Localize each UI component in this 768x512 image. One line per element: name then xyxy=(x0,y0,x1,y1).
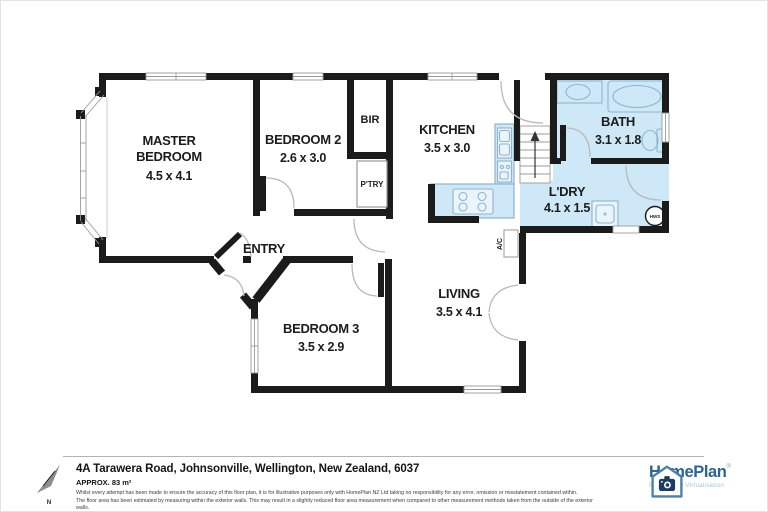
laundry-dims: 4.1 x 1.5 xyxy=(544,201,590,215)
hot-water-system-icon: HWS xyxy=(646,207,665,226)
bedroom2-door xyxy=(260,176,266,211)
master-name-line2: BEDROOM xyxy=(136,149,202,164)
floorplan-drawing: HWS A/C xyxy=(1,1,768,456)
bedroom3-name: BEDROOM 3 xyxy=(283,321,359,336)
floor-area: APPROX. 83 m² xyxy=(76,478,596,487)
entry-name: ENTRY xyxy=(243,241,286,256)
bedroom2-dims: 2.6 x 3.0 xyxy=(280,151,326,165)
cooktop-icon xyxy=(453,189,493,214)
homeplan-logo: HomePlan® Building 3D Virtualisation xyxy=(649,464,731,489)
french-door-left xyxy=(489,285,518,312)
floorplan-page: HWS A/C xyxy=(0,0,768,512)
master-dims: 4.5 x 4.1 xyxy=(146,169,192,183)
bath-name: BATH xyxy=(601,114,635,129)
north-compass-icon: N xyxy=(27,459,71,507)
staircase xyxy=(520,126,550,183)
kitchen-name: KITCHEN xyxy=(419,122,475,137)
footer-divider xyxy=(63,456,704,457)
master-door xyxy=(216,234,240,257)
master-window xyxy=(146,73,206,80)
bedroom2-window xyxy=(293,73,323,80)
disclaimer-line2: The floor area has been estimated by mea… xyxy=(76,498,596,512)
pantry-name: P'TRY xyxy=(361,180,385,189)
property-address: 4A Tarawera Road, Johnsonville, Wellingt… xyxy=(76,463,596,475)
bir-name: BIR xyxy=(361,114,380,126)
logo-registered-mark: ® xyxy=(727,464,731,470)
bedroom3-door xyxy=(378,263,384,297)
bedroom3-dims: 3.5 x 2.9 xyxy=(298,340,344,354)
kitchen-sink-icon xyxy=(498,128,512,158)
kitchen-window xyxy=(428,73,477,80)
ac-unit-icon: A/C xyxy=(497,230,518,257)
laundry-name: L'DRY xyxy=(549,184,586,199)
homeplan-house-icon xyxy=(649,464,685,500)
laundry-tub-icon xyxy=(592,201,618,227)
living-dims: 3.5 x 4.1 xyxy=(436,305,482,319)
bedroom2-name: BEDROOM 2 xyxy=(265,132,341,147)
bedroom3-window xyxy=(251,319,258,373)
french-door-right xyxy=(489,313,518,340)
laundry-door-gap xyxy=(613,226,639,233)
disclaimer-line1: Whilst every attempt has been made to en… xyxy=(76,490,596,498)
living-name: LIVING xyxy=(438,286,480,301)
kitchen-dims: 3.5 x 3.0 xyxy=(424,141,470,155)
master-name-line1: MASTER xyxy=(142,133,196,148)
bath-window xyxy=(662,113,669,142)
oven-icon xyxy=(498,161,512,182)
footer-text-block: 4A Tarawera Road, Johnsonville, Wellingt… xyxy=(76,463,596,512)
kitchen-counter-icon xyxy=(431,124,514,218)
bath-dims: 3.1 x 1.8 xyxy=(595,133,641,147)
hws-label: HWS xyxy=(650,214,661,219)
bath-door xyxy=(560,125,566,161)
compass-north-label: N xyxy=(47,499,52,506)
ac-label: A/C xyxy=(497,238,504,250)
living-window xyxy=(464,386,501,393)
